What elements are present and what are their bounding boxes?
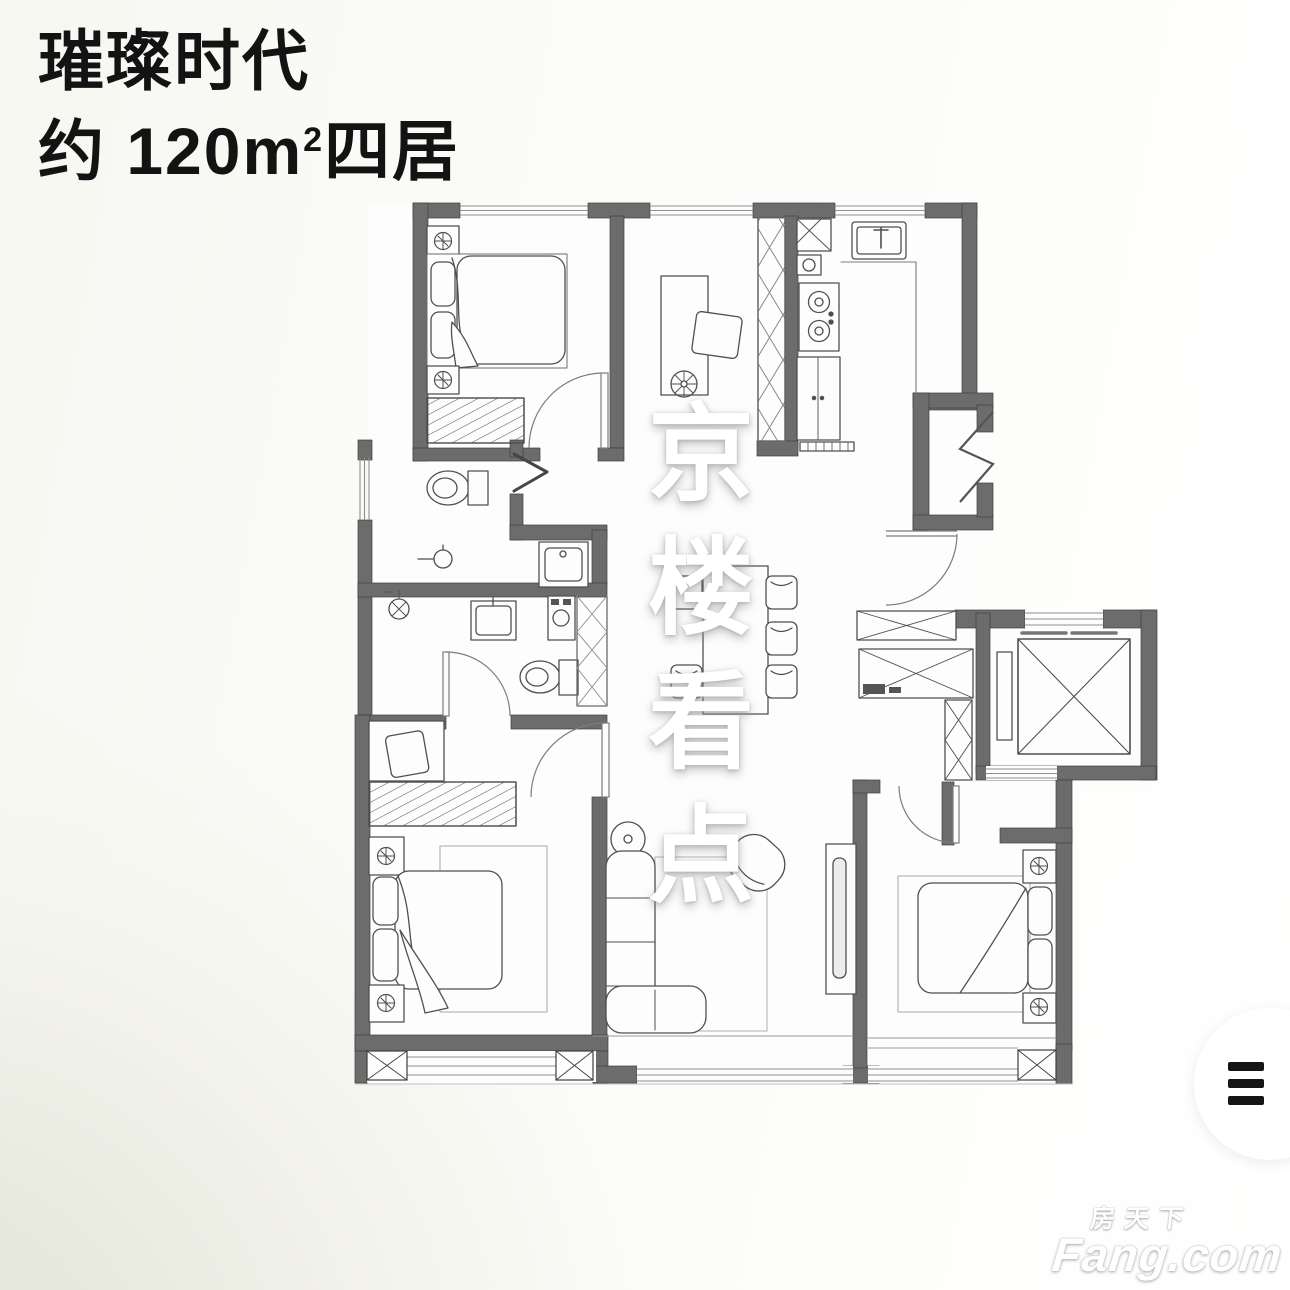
page: 璀璨时代 约 120m2四居 bbox=[0, 0, 1290, 1290]
floor-plan bbox=[0, 0, 1290, 1290]
hall-wardrobe bbox=[758, 217, 785, 441]
